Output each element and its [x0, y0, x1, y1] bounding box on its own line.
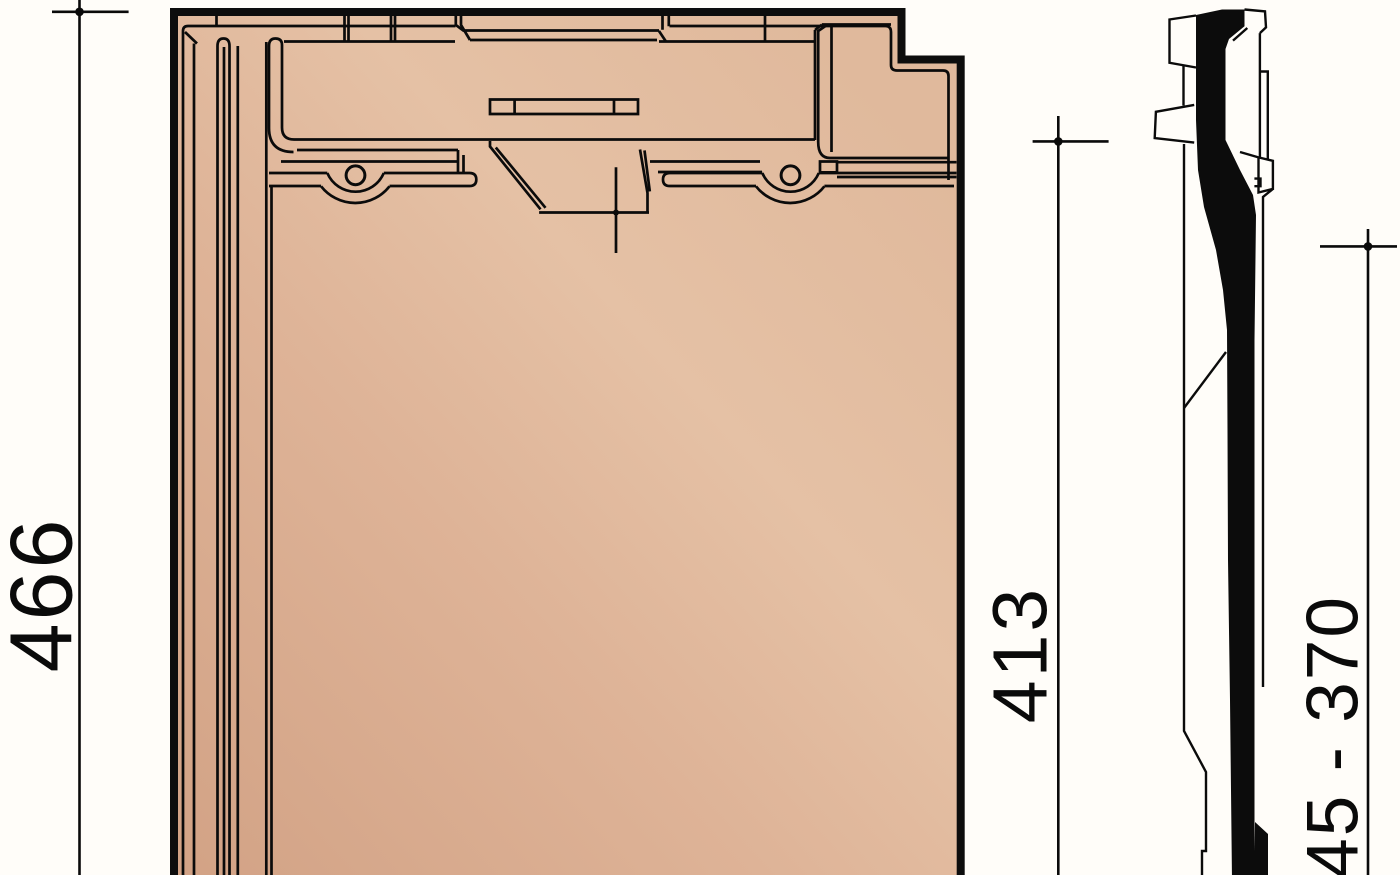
- svg-text:466: 466: [0, 517, 91, 673]
- svg-text:413: 413: [978, 586, 1064, 723]
- svg-text:45 - 370: 45 - 370: [1293, 595, 1374, 875]
